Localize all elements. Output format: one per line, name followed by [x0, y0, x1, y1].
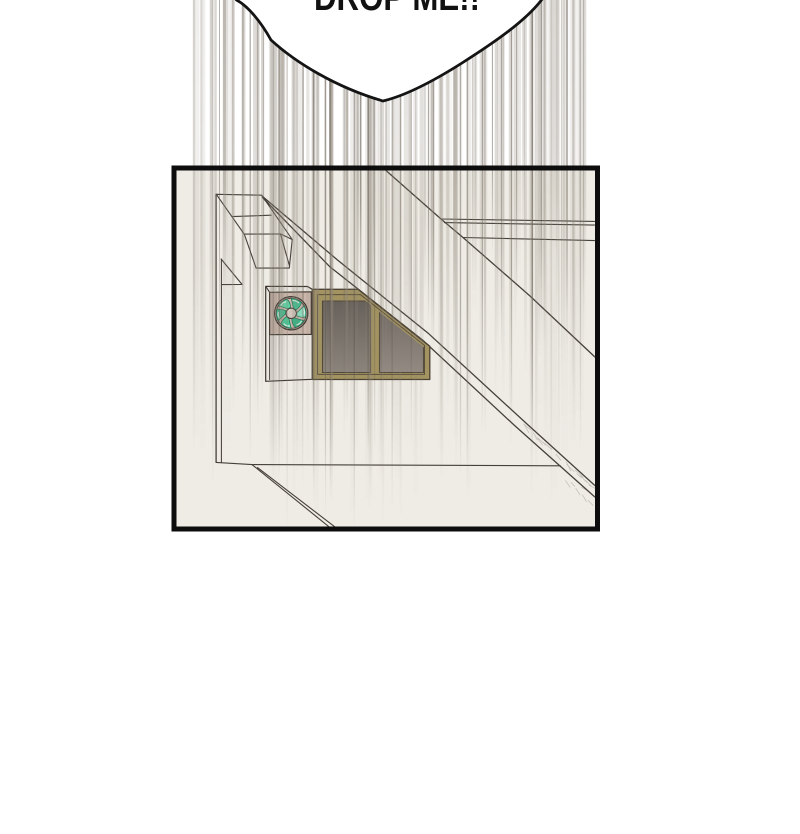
svg-text:DROP ME!!: DROP ME!! — [314, 0, 480, 19]
